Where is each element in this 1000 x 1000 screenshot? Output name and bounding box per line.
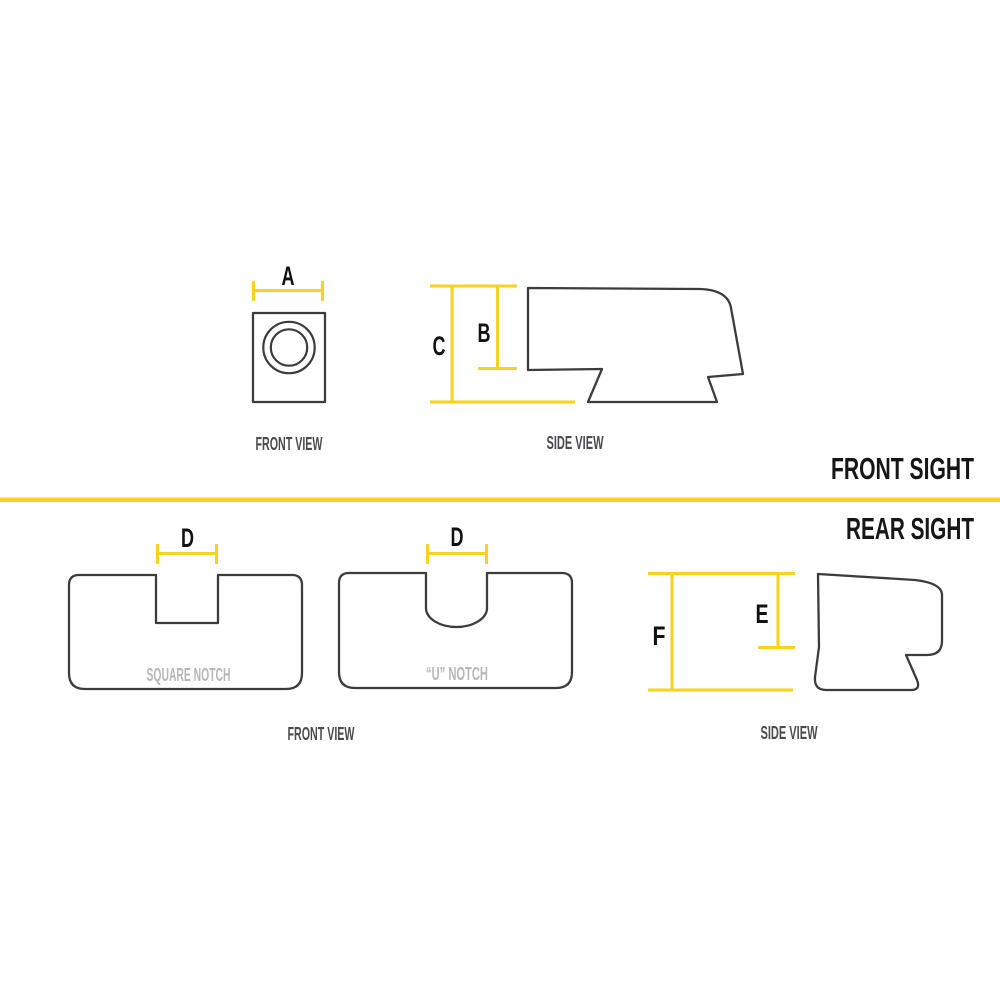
section-divider — [0, 498, 1000, 503]
rear-sight-section: REAR SIGHT D SQUARE NOTCH D “U” NOTCH FR… — [69, 511, 974, 744]
front-sight-body-outline — [253, 313, 325, 402]
dim-c-label: C — [433, 331, 446, 361]
rear-sight-square-notch-view: D SQUARE NOTCH — [69, 523, 302, 689]
front-sight-side-view-caption: SIDE VIEW — [547, 433, 604, 453]
front-sight-section: A FRONT VIEW C B SIDE VIEW FRONT SIGH — [252, 261, 974, 486]
front-sight-side-profile-outline — [528, 288, 743, 402]
square-notch-label: SQUARE NOTCH — [147, 665, 231, 685]
rear-sight-u-notch-view: D “U” NOTCH — [339, 522, 572, 688]
dim-a-label: A — [282, 261, 295, 291]
rear-sight-section-heading: REAR SIGHT — [846, 511, 974, 546]
u-notch-label: “U” NOTCH — [426, 664, 488, 684]
rear-sight-side-view-caption: SIDE VIEW — [761, 723, 818, 743]
front-sight-front-view: A FRONT VIEW — [252, 261, 325, 454]
front-sight-section-heading: FRONT SIGHT — [831, 451, 974, 486]
dim-b-label: B — [478, 318, 491, 348]
dim-e-label: E — [756, 599, 769, 629]
sight-dimension-diagram: A FRONT VIEW C B SIDE VIEW FRONT SIGH — [0, 0, 1000, 1000]
rear-sight-side-view: F E SIDE VIEW — [648, 574, 942, 744]
rear-sight-side-profile-outline — [815, 574, 942, 690]
dim-d-label-square: D — [181, 523, 194, 553]
dim-d-label-u: D — [451, 522, 464, 552]
diagram-canvas: A FRONT VIEW C B SIDE VIEW FRONT SIGH — [0, 0, 1000, 1000]
rear-sight-front-view-caption: FRONT VIEW — [288, 724, 355, 744]
dim-f-label: F — [653, 621, 666, 651]
front-sight-front-view-caption: FRONT VIEW — [256, 434, 323, 454]
front-sight-side-view: C B SIDE VIEW — [430, 286, 743, 453]
